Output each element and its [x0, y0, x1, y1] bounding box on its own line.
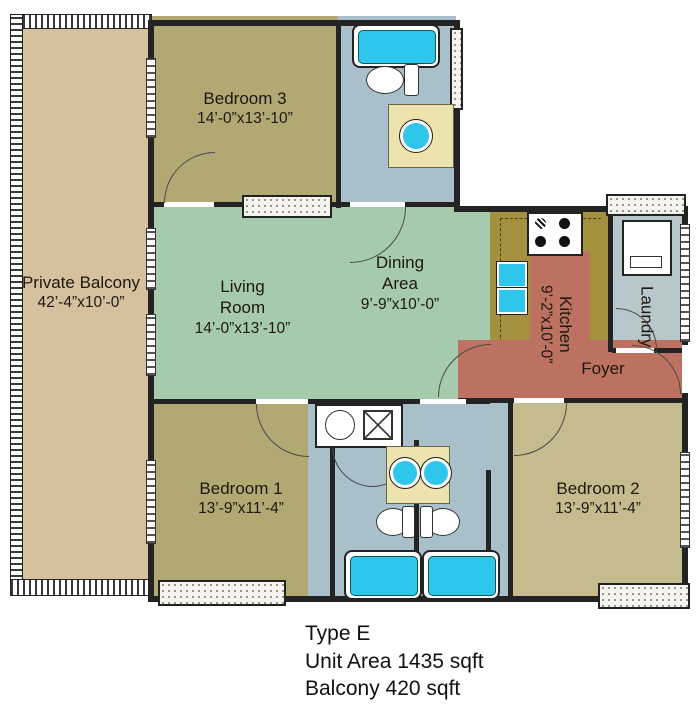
- window-bedroom1-bottom: [158, 580, 286, 606]
- bathtub-icon: [352, 24, 440, 68]
- sink-icon: [400, 120, 432, 152]
- toilet-icon: [366, 66, 404, 94]
- door-opening-hall: [420, 399, 466, 404]
- floor-plan: Private Balcony 42’-4”x10’-0” Bedroom 3 …: [0, 0, 700, 704]
- kitchen-sink-icon: [497, 262, 527, 288]
- label-bedroom-3: Bedroom 3 14’-0”x13’-10”: [162, 88, 328, 129]
- window-bedroom2-bottom: [598, 583, 690, 609]
- wall-foyer-bedroom2: [458, 398, 688, 403]
- caption-type: Type E: [305, 620, 585, 648]
- toilet-tank-icon: [402, 506, 415, 538]
- balcony-bottom-wall: [10, 579, 152, 596]
- wall-kitchen-laundry: [608, 206, 613, 352]
- window-bedroom3: [242, 195, 332, 218]
- washer-dryer-closet: [315, 404, 403, 448]
- kitchen-sink-icon: [497, 288, 527, 314]
- washer-icon: [325, 410, 355, 440]
- sink-icon: [390, 458, 420, 488]
- door-opening-entry: [682, 345, 688, 393]
- window-bath-top: [450, 28, 463, 110]
- label-dining-area: Dining Area 9’-9”x10’-0”: [340, 252, 460, 314]
- window-bedroom2-right: [680, 452, 690, 548]
- plan-caption: Type E Unit Area 1435 sqft Balcony 420 s…: [305, 620, 585, 703]
- label-bedroom-1: Bedroom 1 13’-9”x11’-4”: [156, 478, 326, 519]
- wall-hall-bedroom2: [508, 402, 513, 598]
- wall-bedroom1-hall: [330, 440, 335, 598]
- wall-bedroom3-bath: [336, 20, 341, 208]
- slider-bedroom1-balcony: [146, 460, 156, 544]
- slider-living-balcony-1: [146, 228, 156, 290]
- dryer-icon: [363, 410, 393, 440]
- label-foyer: Foyer: [558, 358, 648, 379]
- caption-balcony-area: Balcony 420 sqft: [305, 675, 585, 703]
- label-living-room: Living Room 14’-0”x13’-10”: [170, 276, 315, 338]
- label-bedroom-2: Bedroom 2 13’-9”x11’-4”: [516, 478, 680, 519]
- bathtub-icon: [422, 550, 500, 600]
- stove-icon: [527, 212, 583, 256]
- caption-unit-area: Unit Area 1435 sqft: [305, 648, 585, 676]
- toilet-tank-icon: [420, 506, 433, 538]
- balcony-top-wall: [10, 14, 152, 29]
- toilet-tank-icon: [404, 64, 419, 96]
- sink-icon: [421, 458, 451, 488]
- slider-living-balcony-2: [146, 314, 156, 376]
- bathtub-icon: [344, 550, 422, 600]
- label-laundry: Laundry: [636, 262, 656, 372]
- label-private-balcony: Private Balcony 42’-4”x10’-0”: [16, 272, 146, 313]
- window-laundry-top: [606, 194, 686, 216]
- slider-bedroom3-balcony: [146, 58, 156, 138]
- window-laundry-right: [680, 224, 690, 342]
